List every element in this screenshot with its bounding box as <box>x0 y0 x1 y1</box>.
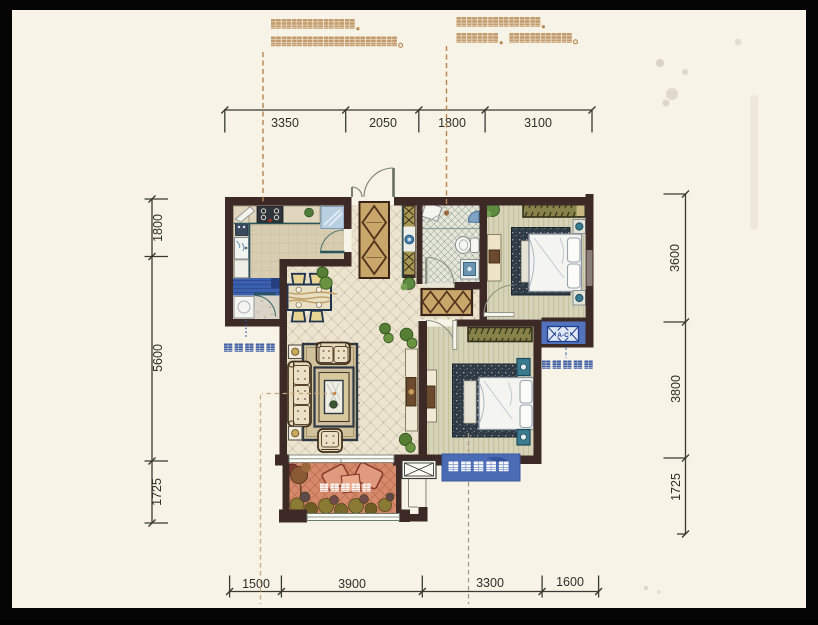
svg-text:1725: 1725 <box>669 473 683 501</box>
svg-text:3900: 3900 <box>338 577 366 591</box>
svg-text:3800: 3800 <box>669 375 683 403</box>
svg-text:1800: 1800 <box>151 214 165 242</box>
svg-text:3600: 3600 <box>668 244 682 272</box>
svg-text:1600: 1600 <box>556 575 584 589</box>
svg-text:1725: 1725 <box>150 478 164 506</box>
svg-text:3300: 3300 <box>476 576 504 590</box>
svg-text:1800: 1800 <box>438 116 466 130</box>
svg-text:5600: 5600 <box>151 344 165 372</box>
svg-text:3100: 3100 <box>524 116 552 130</box>
svg-text:3350: 3350 <box>271 116 299 130</box>
svg-text:1500: 1500 <box>242 577 270 591</box>
svg-text:2050: 2050 <box>369 116 397 130</box>
svg-text:A-C: A-C <box>557 332 569 339</box>
